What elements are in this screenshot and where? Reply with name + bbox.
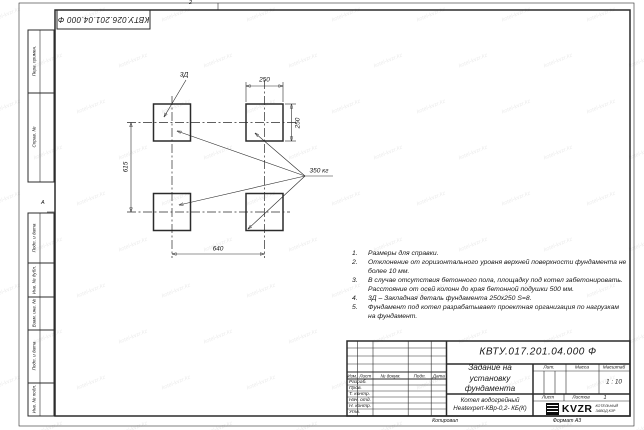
drawing-sheet: kotel-kvzr.kzkotel-kvzr.kzkotel-kvzr.kzk… (0, 0, 644, 430)
kvzr-logo-subtext: КОТЕЛЬНЫЙ ЗАВОД КЗР (595, 404, 618, 413)
doc-title: Задание на установку фундамента (447, 364, 533, 394)
format-label: Формат А3 (553, 418, 581, 424)
scale-value: 1 : 10 (606, 379, 622, 386)
zone-label-top: 2 (189, 0, 192, 6)
margin-label-podp-data-1: Подп. и дата (32, 224, 37, 253)
row-n-kontr: Н. контр. (349, 404, 371, 409)
note-item-1: 1.Размеры для справки. (352, 249, 628, 258)
mass-label: 350 кг (310, 168, 329, 175)
margin-label-vzam-inv: Взам. инв. № (32, 299, 37, 327)
zone-label-left: А (41, 200, 45, 206)
embed-detail-label: 3Д (180, 72, 189, 79)
row-nach-otd: Нач. отд. (349, 398, 371, 403)
dimension-lines (131, 82, 296, 254)
header-podp: Подп. (414, 373, 426, 378)
margin-label-podp-data-2: Подп. и дата (32, 342, 37, 371)
row-razrab: Разраб. (349, 380, 367, 385)
dim-615-left: 615 (123, 162, 130, 173)
margin-label-sprav-no: Справ. № (32, 127, 37, 148)
header-list: Лист (359, 373, 371, 378)
leader-lines (164, 80, 333, 229)
notes-list: 1.Размеры для справки. 2.Отклонение от г… (352, 249, 628, 321)
foundation-pads (154, 104, 284, 231)
dim-250-right: 250 (295, 117, 302, 128)
company-logo: KVZR КОТЕЛЬНЫЙ ЗАВОД КЗР (534, 401, 630, 416)
header-dokum: № докум. (380, 373, 400, 378)
dim-250-top: 250 (259, 77, 270, 84)
paper-border (19, 3, 634, 426)
lit-label: Лит. (543, 365, 554, 370)
dim-640-bottom: 640 (213, 246, 224, 253)
row-utv: Утв. (349, 410, 360, 415)
copied-label: Копировал (432, 418, 458, 424)
sheet-no-label: Лист (542, 395, 554, 400)
doc-number: КВТУ.017.201.04.000 Ф (479, 347, 596, 358)
note-item-5: 5.Фундамент под котел разрабатывает прое… (352, 303, 628, 321)
note-item-4: 4.3Д – Закладная деталь фундамента 250х2… (352, 294, 628, 303)
sheets-total-value: 1 (603, 395, 606, 401)
centerlines (127, 80, 298, 258)
sheets-total-label: Листов (572, 395, 589, 400)
margin-label-inv-podl: Инв. № подл. (32, 385, 37, 414)
product-name: Котел водогрейный Heatexpert-КВр-0,2- КБ… (447, 394, 533, 416)
note-item-2: 2.Отклонение от горизонтального уровня в… (352, 258, 628, 276)
mass-col-label: Масса (575, 365, 589, 370)
scale-col-label: Масштаб (603, 365, 625, 370)
margin-label-inv-dubl: Инв. № дубл. (32, 266, 37, 294)
row-t-kontr: Т. контр. (349, 392, 370, 397)
kvzr-logo-text: KVZR (562, 403, 593, 415)
header-data: Дата (433, 373, 445, 378)
header-izm: Изм. (347, 373, 357, 378)
top-stamp: КВТУ.026.201.04.000 Ф (57, 10, 150, 29)
note-item-3: 3.В случае отсутствия бетонного пола, пл… (352, 276, 628, 294)
margin-label-perv-primen: Перв. примен. (32, 46, 37, 77)
kvzr-logo-icon (546, 403, 559, 415)
row-prov: Пров. (349, 386, 362, 391)
